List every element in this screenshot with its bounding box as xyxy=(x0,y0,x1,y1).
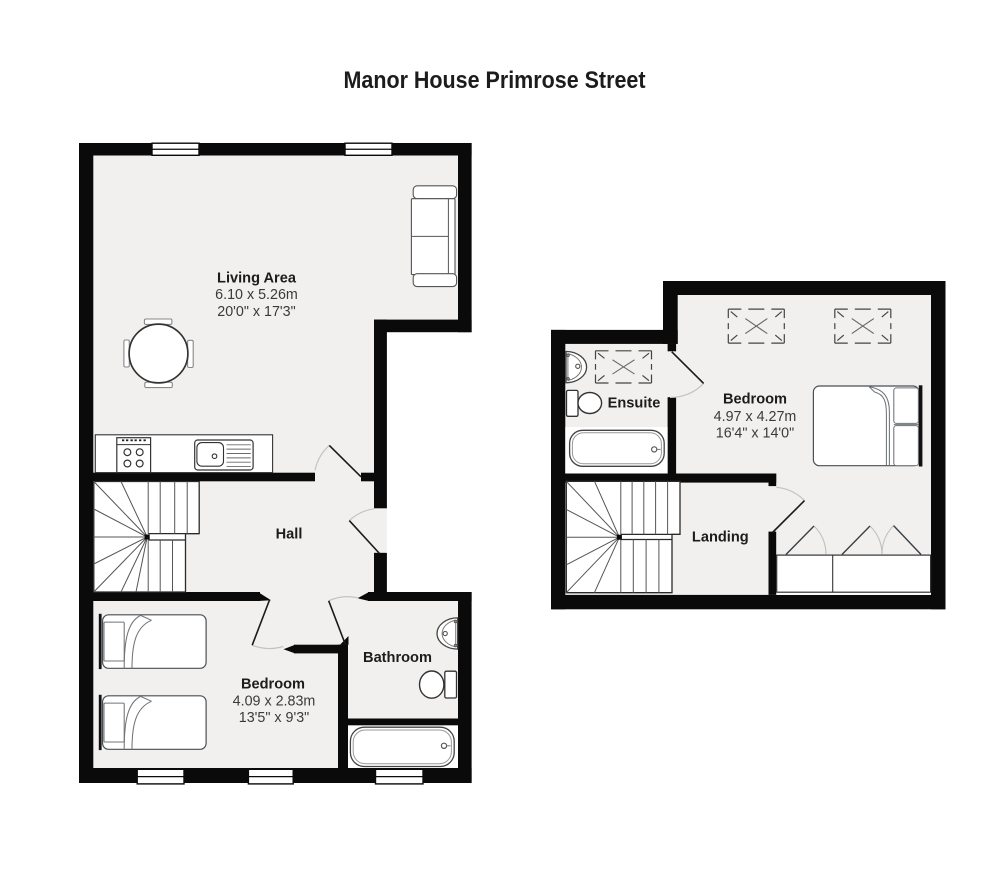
svg-text:Landing: Landing xyxy=(692,529,749,545)
svg-text:Ensuite: Ensuite xyxy=(608,396,661,412)
svg-text:Hall: Hall xyxy=(276,527,303,543)
svg-text:20'0" x 17'3": 20'0" x 17'3" xyxy=(217,304,295,320)
svg-text:Bathroom: Bathroom xyxy=(363,650,432,666)
svg-text:13'5" x 9'3": 13'5" x 9'3" xyxy=(239,710,309,726)
svg-text:Manor House Primrose Street: Manor House Primrose Street xyxy=(344,67,646,94)
svg-text:6.10 x 5.26m: 6.10 x 5.26m xyxy=(215,287,298,303)
svg-text:4.09 x 2.83m: 4.09 x 2.83m xyxy=(233,694,316,710)
svg-text:16'4" x 14'0": 16'4" x 14'0" xyxy=(716,425,794,441)
svg-text:Bedroom: Bedroom xyxy=(241,677,305,693)
svg-text:Bedroom: Bedroom xyxy=(723,391,787,407)
svg-text:4.97 x 4.27m: 4.97 x 4.27m xyxy=(714,409,797,425)
svg-text:Living Area: Living Area xyxy=(217,270,297,286)
